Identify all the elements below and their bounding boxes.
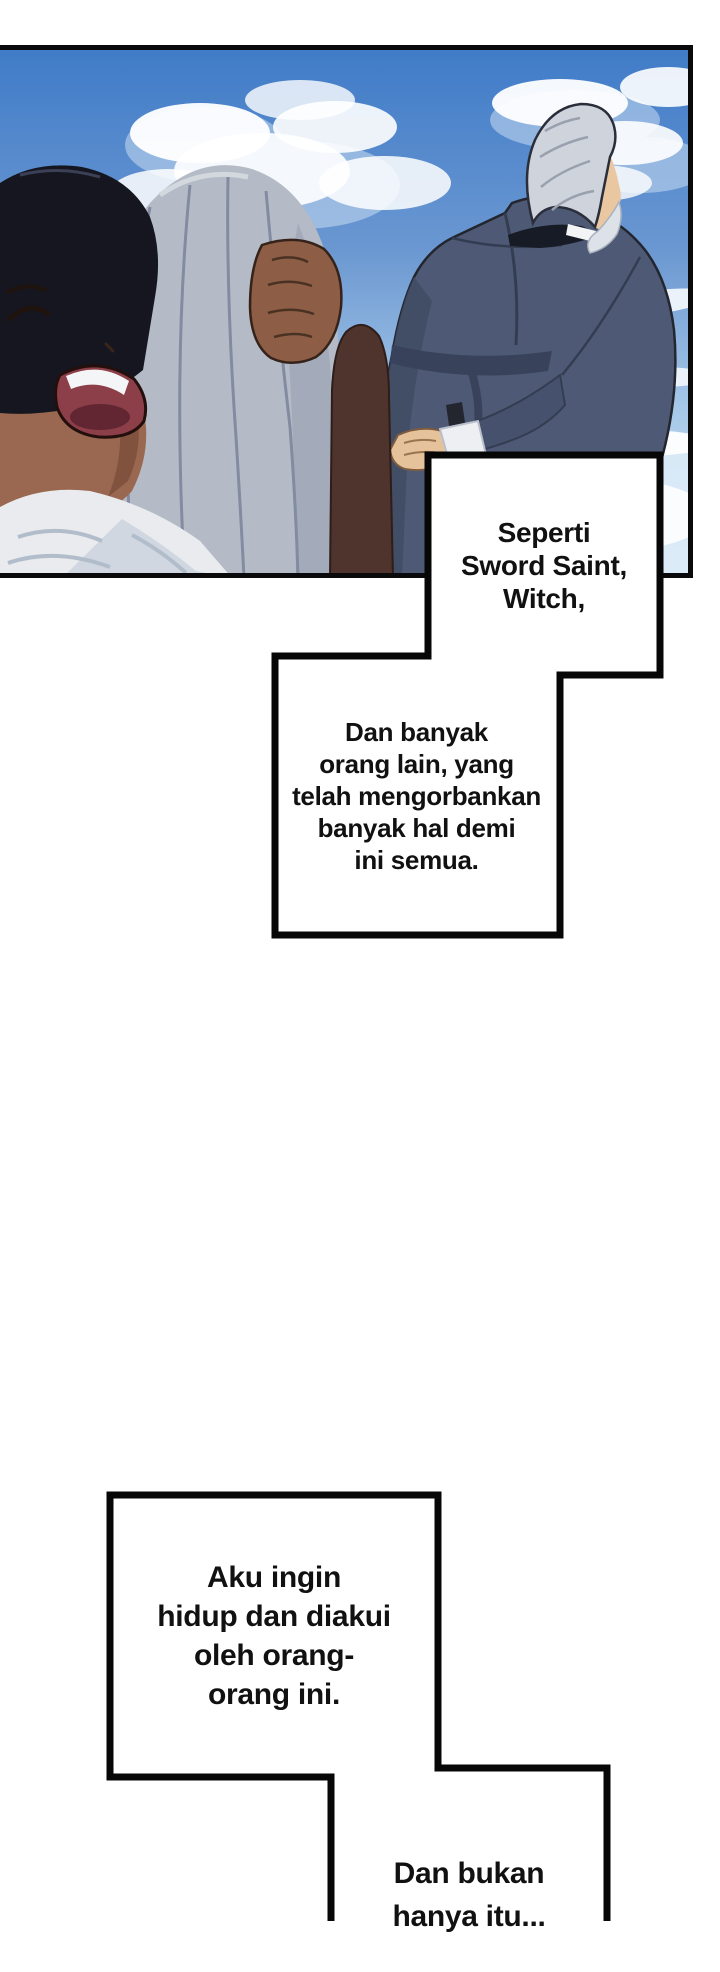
caption-line: Dan banyak	[275, 716, 558, 748]
embracing-arm	[330, 325, 393, 578]
caption-line: banyak hal demi	[275, 812, 558, 844]
caption-line: orang lain, yang	[275, 748, 558, 780]
webtoon-page: Seperti Sword Saint, Witch, Dan banyak o…	[0, 0, 720, 1921]
caption-line: Sword Saint,	[428, 549, 660, 582]
caption-line: ini semua.	[275, 844, 558, 876]
caption-line: oleh orang-	[110, 1636, 438, 1675]
caption-box-3: Aku ingin hidup dan diakui oleh orang- o…	[110, 1495, 438, 1777]
caption-line: hanya itu...	[331, 1895, 607, 1938]
caption-box-2: Dan banyak orang lain, yang telah mengor…	[275, 656, 558, 935]
caption-line: Witch,	[428, 582, 660, 615]
caption-line: Seperti	[428, 516, 660, 549]
caption-line: orang ini.	[110, 1675, 438, 1714]
caption-box-4: Dan bukan hanya itu...	[331, 1852, 607, 1972]
caption-line: Dan bukan	[331, 1852, 607, 1895]
caption-line: telah mengorbankan	[275, 780, 558, 812]
caption-line: hidup dan diakui	[110, 1597, 438, 1636]
caption-line: Aku ingin	[110, 1558, 438, 1597]
caption-box-1: Seperti Sword Saint, Witch,	[428, 455, 660, 675]
